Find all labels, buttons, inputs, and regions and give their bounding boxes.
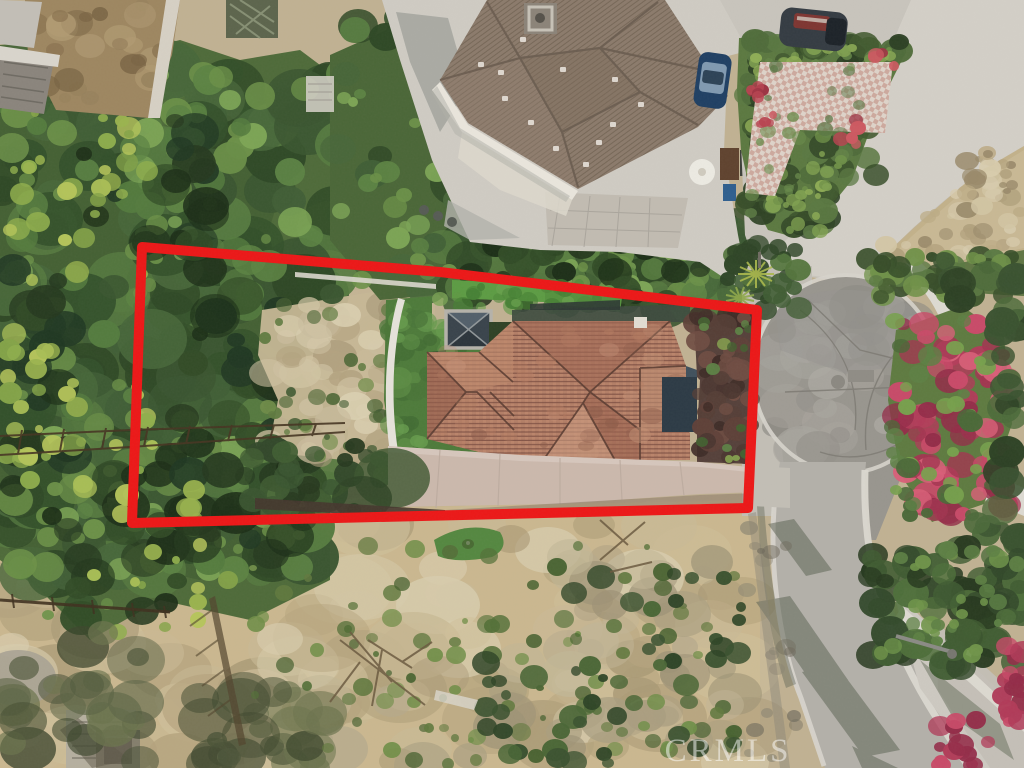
svg-text:CRMLS: CRMLS xyxy=(665,733,792,768)
